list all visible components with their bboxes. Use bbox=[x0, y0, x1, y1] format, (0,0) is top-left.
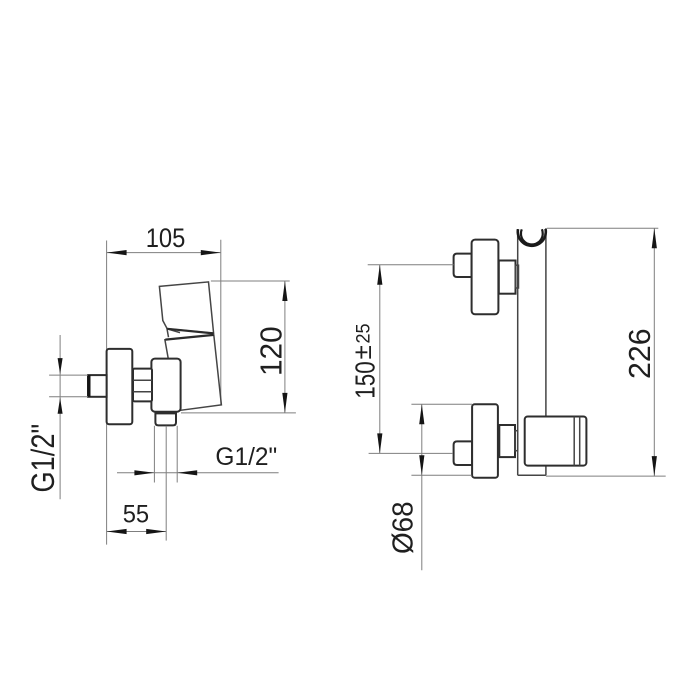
svg-text:55: 55 bbox=[123, 501, 149, 529]
svg-text:120: 120 bbox=[254, 326, 289, 376]
svg-text:150: 150 bbox=[350, 361, 381, 398]
svg-text:105: 105 bbox=[146, 224, 186, 254]
svg-text:226: 226 bbox=[622, 328, 657, 379]
svg-text:G1/2": G1/2" bbox=[215, 444, 277, 471]
svg-text:Ø68: Ø68 bbox=[387, 501, 420, 554]
svg-text:25: 25 bbox=[352, 323, 374, 343]
svg-text:G1/2": G1/2" bbox=[26, 424, 62, 493]
svg-text:±: ± bbox=[347, 345, 377, 359]
